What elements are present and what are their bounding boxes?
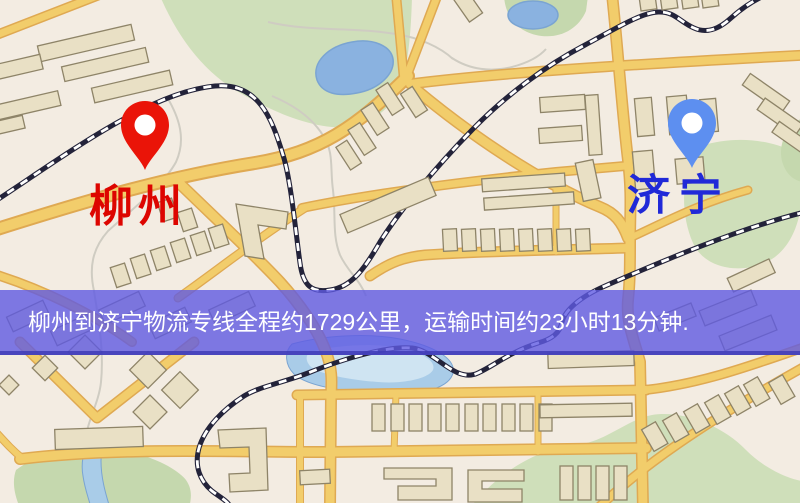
origin-map-pin-icon[interactable] [121, 101, 169, 170]
map-canvas: 柳州 济宁 [0, 0, 800, 503]
route-info-banner: 柳州到济宁物流专线全程约1729公里，运输时间约23小时13分钟. [0, 290, 800, 355]
route-info-text: 柳州到济宁物流专线全程约1729公里，运输时间约23小时13分钟. [28, 303, 689, 337]
origin-pin-hole [135, 115, 156, 136]
destination-city-label: 济宁 [627, 172, 731, 220]
map-screenshot: 柳州 济宁 柳州到济宁物流专线全程约1729公里，运输时间约23小时13分钟. [0, 0, 800, 503]
origin-city-label: 柳州 [89, 182, 187, 231]
destination-pin-hole [682, 113, 703, 134]
